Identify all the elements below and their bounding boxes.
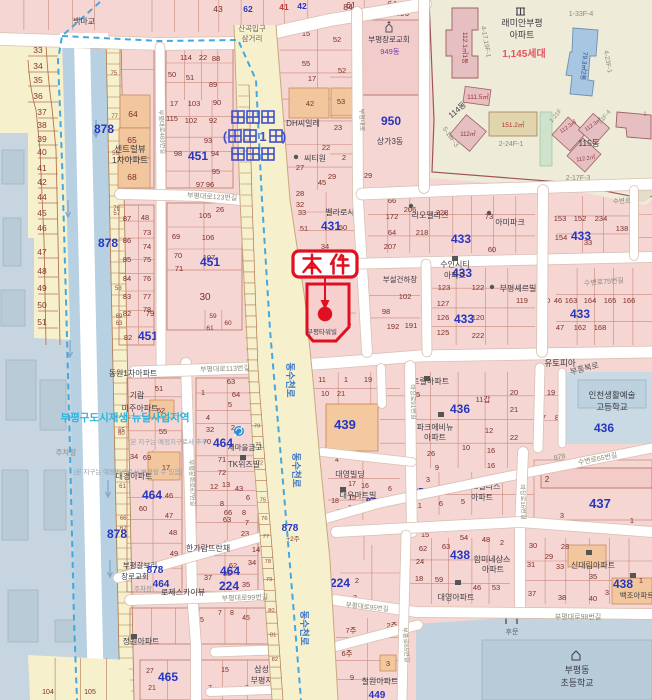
- svg-text:29: 29: [545, 552, 553, 561]
- svg-text:6: 6: [246, 493, 250, 502]
- svg-text:64: 64: [128, 109, 138, 119]
- svg-text:53: 53: [337, 97, 345, 106]
- svg-text:부평셰르빌: 부평셰르빌: [500, 283, 537, 293]
- svg-text:34: 34: [130, 452, 138, 461]
- svg-text:76: 76: [113, 206, 120, 212]
- svg-text:449: 449: [369, 690, 386, 700]
- svg-text:89: 89: [209, 80, 217, 89]
- svg-text:93: 93: [204, 136, 212, 145]
- svg-text:1: 1: [259, 129, 266, 144]
- svg-text:1,145세대: 1,145세대: [502, 47, 545, 60]
- svg-text:DH씨일레: DH씨일레: [286, 119, 320, 128]
- svg-text:51: 51: [155, 384, 163, 393]
- svg-text:154: 154: [555, 233, 568, 242]
- svg-text:125: 125: [437, 328, 450, 337]
- svg-text:46: 46: [473, 583, 481, 592]
- svg-text:97: 97: [196, 180, 204, 189]
- svg-text:451: 451: [200, 255, 220, 269]
- svg-text:미주아파트: 미주아파트: [122, 403, 159, 413]
- svg-text:마장로16번길: 마장로16번길: [518, 484, 527, 520]
- svg-text:29: 29: [364, 171, 372, 180]
- svg-text:철원아파트: 철원아파트: [362, 676, 399, 686]
- svg-text:산곡입구: 산곡입구: [238, 23, 266, 33]
- svg-text:78: 78: [265, 559, 271, 565]
- svg-text:138: 138: [616, 224, 629, 233]
- svg-text:94: 94: [211, 149, 219, 158]
- svg-text:센트럴뷰: 센트럴뷰: [114, 144, 145, 154]
- svg-text:115: 115: [166, 114, 178, 123]
- svg-text:123: 123: [438, 283, 451, 292]
- svg-text:152: 152: [574, 214, 587, 223]
- svg-text:한가람뜨란채: 한가람뜨란채: [186, 543, 230, 553]
- svg-text:부설건하장: 부설건하장: [383, 274, 418, 284]
- svg-text:기람: 기람: [130, 391, 145, 400]
- svg-text:39: 39: [37, 134, 47, 144]
- svg-text:TK위즈빌: TK위즈빌: [228, 459, 260, 469]
- svg-text:부평장로교회: 부평장로교회: [368, 34, 409, 44]
- svg-text:163: 163: [565, 296, 578, 305]
- svg-text:아미파크: 아미파크: [495, 217, 524, 227]
- svg-text:고등학교: 고등학교: [596, 402, 627, 412]
- svg-text:동수천로: 동수천로: [290, 453, 301, 488]
- svg-text:인천생활예술: 인천생활예술: [589, 390, 636, 400]
- svg-text:46: 46: [37, 223, 47, 233]
- svg-text:유토피아: 유토피아: [544, 358, 575, 368]
- svg-text:마장로91번길: 마장로91번길: [408, 384, 417, 420]
- svg-text:48: 48: [141, 213, 149, 222]
- svg-text:2: 2: [545, 475, 550, 484]
- svg-text:436: 436: [450, 402, 470, 416]
- svg-text:21: 21: [148, 685, 156, 692]
- svg-text:22: 22: [199, 53, 207, 62]
- svg-text:42: 42: [297, 1, 307, 11]
- svg-text:27: 27: [146, 668, 154, 675]
- svg-text:75: 75: [110, 71, 117, 77]
- svg-text:35: 35: [33, 75, 43, 85]
- svg-text:50: 50: [37, 300, 47, 310]
- svg-text:15: 15: [221, 667, 229, 674]
- svg-text:4: 4: [206, 413, 210, 422]
- svg-text:27: 27: [296, 163, 304, 172]
- svg-text:166: 166: [623, 296, 636, 305]
- svg-text:37: 37: [528, 589, 536, 598]
- svg-text:111.5㎡: 111.5㎡: [467, 92, 489, 101]
- svg-text:30: 30: [529, 541, 537, 550]
- svg-text:151.2㎡: 151.2㎡: [502, 120, 525, 129]
- svg-text:63: 63: [442, 542, 450, 551]
- svg-text:76: 76: [261, 516, 267, 522]
- svg-text:82: 82: [123, 309, 131, 318]
- svg-text:동수천로: 동수천로: [298, 611, 309, 646]
- svg-text:80: 80: [268, 608, 274, 614]
- svg-text:29: 29: [328, 172, 336, 181]
- svg-text:30: 30: [199, 292, 211, 303]
- svg-text:105: 105: [84, 689, 96, 696]
- svg-text:62: 62: [419, 544, 427, 553]
- svg-text:2: 2: [355, 576, 359, 585]
- svg-text:+2주: +2주: [286, 535, 299, 543]
- svg-text:75: 75: [260, 497, 266, 503]
- svg-text:55: 55: [302, 59, 310, 68]
- svg-text:222: 222: [472, 331, 485, 340]
- svg-text:43: 43: [235, 484, 243, 493]
- svg-text:16: 16: [361, 483, 369, 490]
- svg-text:122: 122: [472, 283, 485, 292]
- svg-text:439: 439: [334, 417, 356, 432]
- svg-text:92: 92: [209, 116, 217, 125]
- svg-text:162: 162: [574, 323, 587, 332]
- svg-text:48: 48: [37, 266, 47, 276]
- svg-text:465: 465: [158, 670, 178, 684]
- svg-text:84: 84: [123, 274, 131, 283]
- svg-text:64: 64: [232, 390, 240, 399]
- svg-text:16: 16: [487, 446, 495, 455]
- svg-text:17: 17: [348, 481, 356, 488]
- svg-text:18: 18: [331, 498, 339, 505]
- svg-text:191: 191: [405, 321, 418, 330]
- svg-text:부평문화로67번길: 부평문화로67번길: [187, 459, 197, 506]
- svg-text:22: 22: [322, 143, 330, 152]
- svg-text:34: 34: [33, 61, 43, 71]
- svg-text:83: 83: [123, 292, 131, 301]
- svg-text:42: 42: [37, 177, 47, 187]
- svg-text:41: 41: [279, 2, 289, 12]
- svg-text:장로교회: 장로교회: [121, 571, 149, 581]
- svg-text:98: 98: [174, 149, 182, 158]
- svg-text:40: 40: [37, 147, 47, 157]
- svg-text:33: 33: [556, 562, 564, 571]
- svg-text:부평대로98번길: 부평대로98번길: [555, 612, 601, 621]
- svg-text:51: 51: [186, 73, 194, 82]
- svg-text:19: 19: [547, 388, 555, 397]
- svg-text:5: 5: [228, 400, 232, 409]
- svg-text:61: 61: [119, 484, 126, 490]
- svg-text:61: 61: [206, 325, 214, 332]
- svg-text:(: (: [223, 129, 228, 144]
- svg-text:55: 55: [159, 427, 167, 436]
- svg-text:81: 81: [270, 633, 276, 639]
- svg-text:192: 192: [387, 322, 400, 331]
- svg-text:47: 47: [556, 323, 564, 332]
- svg-text:46: 46: [554, 296, 562, 305]
- svg-text:878: 878: [282, 523, 299, 534]
- svg-text:파크에비뉴: 파크에비뉴: [417, 423, 454, 432]
- svg-text:114: 114: [180, 53, 192, 62]
- svg-text:68: 68: [127, 172, 137, 182]
- svg-text:77: 77: [263, 534, 269, 540]
- svg-text:리오펠리스: 리오펠리스: [412, 210, 449, 220]
- svg-text:49: 49: [37, 283, 47, 293]
- svg-text:11갑: 11갑: [476, 395, 491, 404]
- svg-text:동수천로: 동수천로: [284, 363, 295, 398]
- svg-text:3: 3: [386, 659, 390, 668]
- svg-text:102: 102: [185, 116, 198, 125]
- svg-text:60: 60: [139, 504, 147, 513]
- svg-text:34: 34: [248, 558, 256, 567]
- svg-text:6: 6: [439, 499, 443, 508]
- svg-text:22: 22: [510, 433, 518, 442]
- svg-text:47: 47: [165, 511, 173, 520]
- svg-text:18: 18: [415, 574, 423, 583]
- svg-text:126: 126: [437, 313, 450, 322]
- svg-text:51: 51: [37, 317, 47, 327]
- svg-text:1: 1: [643, 111, 647, 118]
- svg-text:1: 1: [630, 516, 634, 525]
- svg-text:대경아파트: 대경아파트: [116, 471, 153, 481]
- svg-text:90: 90: [213, 98, 221, 107]
- svg-text:48: 48: [482, 535, 490, 544]
- svg-text:1: 1: [201, 388, 205, 397]
- svg-text:433: 433: [571, 229, 591, 243]
- svg-text:66: 66: [120, 516, 127, 522]
- svg-text:13: 13: [222, 480, 230, 489]
- svg-text:72: 72: [218, 468, 226, 477]
- svg-text:37: 37: [37, 107, 47, 117]
- svg-text:21: 21: [337, 389, 345, 398]
- svg-text:28: 28: [296, 189, 304, 198]
- svg-text:59: 59: [209, 313, 217, 320]
- svg-text:74: 74: [143, 242, 151, 251]
- svg-text:37: 37: [204, 573, 212, 582]
- svg-text:105: 105: [199, 211, 212, 220]
- svg-text:41: 41: [37, 163, 47, 173]
- svg-text:53: 53: [492, 583, 500, 592]
- svg-text:433: 433: [451, 232, 471, 246]
- svg-text:6주: 6주: [341, 649, 352, 658]
- svg-text:436: 436: [594, 421, 614, 435]
- svg-text:벨라로사: 벨라로사: [325, 207, 355, 217]
- svg-text:20: 20: [510, 388, 518, 397]
- svg-text:106: 106: [202, 233, 215, 242]
- svg-text:119: 119: [516, 296, 528, 305]
- svg-text:로제스카이뷰: 로제스카이뷰: [161, 587, 205, 597]
- svg-text:1: 1: [344, 375, 348, 384]
- svg-text:62: 62: [243, 4, 253, 14]
- svg-text:451: 451: [138, 329, 158, 343]
- svg-text:부평동: 부평동: [565, 665, 590, 675]
- svg-text:85: 85: [123, 255, 131, 264]
- svg-text:60: 60: [488, 245, 496, 254]
- svg-text:수변로: 수변로: [613, 197, 631, 206]
- svg-text:(본 지구는 예정지구로서 추후: (본 지구는 예정지구로서 추후: [128, 437, 207, 446]
- svg-text:71: 71: [218, 455, 226, 464]
- svg-text:26: 26: [216, 205, 224, 214]
- svg-text:79: 79: [266, 577, 272, 583]
- svg-text:51: 51: [300, 224, 308, 233]
- svg-text:64: 64: [388, 228, 396, 237]
- svg-text:65: 65: [118, 428, 125, 434]
- svg-text:52: 52: [338, 66, 346, 75]
- svg-text:82: 82: [272, 657, 278, 663]
- svg-text:103: 103: [188, 99, 201, 108]
- svg-text:3: 3: [426, 475, 430, 484]
- svg-text:464: 464: [142, 488, 162, 502]
- svg-text:46: 46: [165, 491, 173, 500]
- svg-text:부평대로: 부평대로: [358, 108, 367, 131]
- svg-text:73: 73: [143, 228, 151, 237]
- svg-text:17: 17: [308, 74, 316, 83]
- svg-text:112㎡: 112㎡: [460, 130, 476, 138]
- svg-text:153: 153: [554, 214, 567, 223]
- svg-text:63: 63: [227, 377, 235, 386]
- svg-text:아파트: 아파트: [444, 270, 466, 280]
- svg-text:168: 168: [594, 323, 607, 332]
- svg-text:1: 1: [639, 576, 643, 585]
- svg-text:아파트: 아파트: [482, 564, 504, 574]
- svg-text:98: 98: [382, 307, 390, 316]
- svg-text:정원아파트: 정원아파트: [123, 636, 160, 646]
- svg-text:75: 75: [143, 255, 151, 264]
- svg-text:45: 45: [242, 615, 250, 622]
- svg-text:아파트: 아파트: [510, 30, 535, 40]
- svg-text:38: 38: [37, 120, 47, 130]
- svg-text:래미안부평: 래미안부평: [501, 18, 542, 28]
- svg-text:451: 451: [188, 149, 208, 163]
- svg-text:82: 82: [124, 333, 132, 342]
- svg-text:48: 48: [169, 528, 177, 537]
- svg-text:42: 42: [306, 99, 314, 108]
- svg-text:50: 50: [168, 70, 176, 79]
- svg-text:54: 54: [460, 533, 468, 542]
- svg-text:2: 2: [342, 153, 346, 162]
- svg-text:172: 172: [386, 212, 399, 221]
- svg-text:102: 102: [399, 292, 412, 301]
- svg-text:부평갈보리: 부평갈보리: [123, 560, 158, 570]
- svg-text:69: 69: [172, 232, 180, 241]
- svg-text:77: 77: [111, 114, 118, 120]
- svg-text:주차장: 주차장: [56, 447, 77, 457]
- svg-text:삼거리: 삼거리: [242, 33, 263, 43]
- svg-text:3: 3: [560, 511, 564, 520]
- svg-text:23: 23: [334, 123, 342, 132]
- svg-text:438: 438: [613, 577, 633, 591]
- svg-text:백조아파트: 백조아파트: [620, 590, 652, 600]
- svg-text:새마을금고: 새마을금고: [228, 443, 263, 452]
- svg-text:): ): [282, 129, 286, 144]
- svg-text:1-33F-4: 1-33F-4: [569, 11, 594, 18]
- svg-text:431: 431: [321, 219, 341, 233]
- svg-text:9: 9: [435, 463, 439, 472]
- svg-text:52: 52: [333, 35, 341, 44]
- svg-text:71: 71: [175, 264, 183, 273]
- svg-text:104: 104: [42, 689, 54, 696]
- svg-text:11: 11: [318, 375, 326, 384]
- svg-text:207: 207: [384, 242, 397, 251]
- svg-text:115동: 115동: [578, 138, 600, 148]
- svg-text:12: 12: [210, 482, 218, 491]
- svg-text:127: 127: [437, 299, 450, 308]
- svg-text:878: 878: [98, 236, 118, 250]
- svg-text:43: 43: [213, 4, 223, 14]
- svg-text:31: 31: [527, 560, 535, 569]
- svg-text:949동: 949동: [380, 47, 400, 56]
- svg-text:47: 47: [37, 247, 47, 257]
- svg-text:438: 438: [450, 548, 470, 562]
- svg-text:59: 59: [435, 575, 443, 584]
- svg-text:17: 17: [170, 99, 178, 108]
- svg-text:19: 19: [364, 375, 372, 384]
- svg-text:상가3동: 상가3동: [377, 136, 404, 146]
- svg-text:164: 164: [584, 296, 597, 305]
- svg-text:95: 95: [212, 167, 220, 176]
- svg-text:28: 28: [561, 542, 569, 551]
- svg-text:14: 14: [252, 545, 260, 554]
- svg-text:433: 433: [570, 307, 590, 321]
- svg-text:45: 45: [37, 208, 47, 218]
- svg-text:38: 38: [558, 593, 566, 602]
- svg-text:동원1차아파트: 동원1차아파트: [109, 368, 158, 378]
- svg-text:5: 5: [461, 497, 465, 506]
- svg-text:234: 234: [595, 214, 608, 223]
- svg-text:112.1㎡1동: 112.1㎡1동: [461, 32, 470, 64]
- svg-text:함미네상스: 함미네상스: [474, 554, 511, 564]
- svg-text:8: 8: [242, 508, 246, 517]
- svg-text:224: 224: [330, 576, 350, 590]
- svg-text:7주: 7주: [345, 626, 356, 635]
- svg-text:70: 70: [174, 251, 182, 260]
- svg-text:12: 12: [485, 426, 493, 435]
- svg-text:16: 16: [487, 461, 495, 470]
- svg-text:77: 77: [143, 292, 151, 301]
- svg-text:21: 21: [510, 405, 518, 414]
- svg-text:대영빌딩: 대영빌딩: [335, 469, 364, 479]
- svg-text:9: 9: [350, 673, 354, 682]
- svg-text:26: 26: [427, 449, 435, 458]
- svg-text:878: 878: [107, 527, 127, 541]
- svg-text:950: 950: [381, 114, 401, 128]
- svg-text:1차아파트: 1차아파트: [112, 155, 148, 165]
- svg-text:40: 40: [589, 594, 597, 603]
- svg-text:96: 96: [206, 180, 214, 189]
- svg-text:신대림아파트: 신대림아파트: [571, 560, 615, 570]
- svg-text:878: 878: [94, 122, 114, 136]
- svg-text:아파트: 아파트: [471, 492, 493, 502]
- svg-text:주차장: 주차장: [134, 584, 152, 593]
- svg-text:70: 70: [254, 424, 260, 430]
- svg-text:464: 464: [220, 564, 240, 578]
- svg-text:8: 8: [220, 499, 224, 508]
- svg-text:7: 7: [245, 518, 249, 527]
- svg-text:부평타워빌: 부평타워빌: [307, 327, 337, 336]
- svg-text:60: 60: [224, 320, 232, 327]
- svg-text:36: 36: [33, 91, 43, 101]
- svg-text:3: 3: [605, 588, 609, 597]
- svg-text:45: 45: [318, 178, 326, 187]
- svg-text:6: 6: [388, 486, 392, 493]
- svg-text:33: 33: [298, 208, 306, 217]
- svg-text:437: 437: [589, 496, 611, 511]
- svg-text:63: 63: [223, 515, 231, 524]
- svg-text:79: 79: [146, 309, 154, 318]
- svg-text:88: 88: [212, 54, 220, 63]
- svg-text:7: 7: [218, 610, 222, 617]
- svg-text:44: 44: [37, 192, 47, 202]
- svg-text:2-24F-1: 2-24F-1: [499, 141, 524, 148]
- svg-text:87: 87: [123, 214, 131, 223]
- svg-text:후문: 후문: [506, 628, 519, 636]
- svg-text:2: 2: [500, 538, 504, 547]
- svg-text:165: 165: [604, 296, 617, 305]
- svg-text:백마교: 백마교: [73, 16, 95, 26]
- svg-text:아파트: 아파트: [424, 432, 446, 442]
- svg-text:35: 35: [589, 572, 597, 581]
- svg-text:24: 24: [416, 557, 424, 566]
- svg-text:씨티원: 씨티원: [304, 154, 326, 163]
- svg-text:초등학교: 초등학교: [560, 678, 593, 688]
- svg-text:10: 10: [462, 443, 470, 452]
- svg-text:32: 32: [206, 425, 214, 434]
- svg-text:8: 8: [230, 610, 234, 617]
